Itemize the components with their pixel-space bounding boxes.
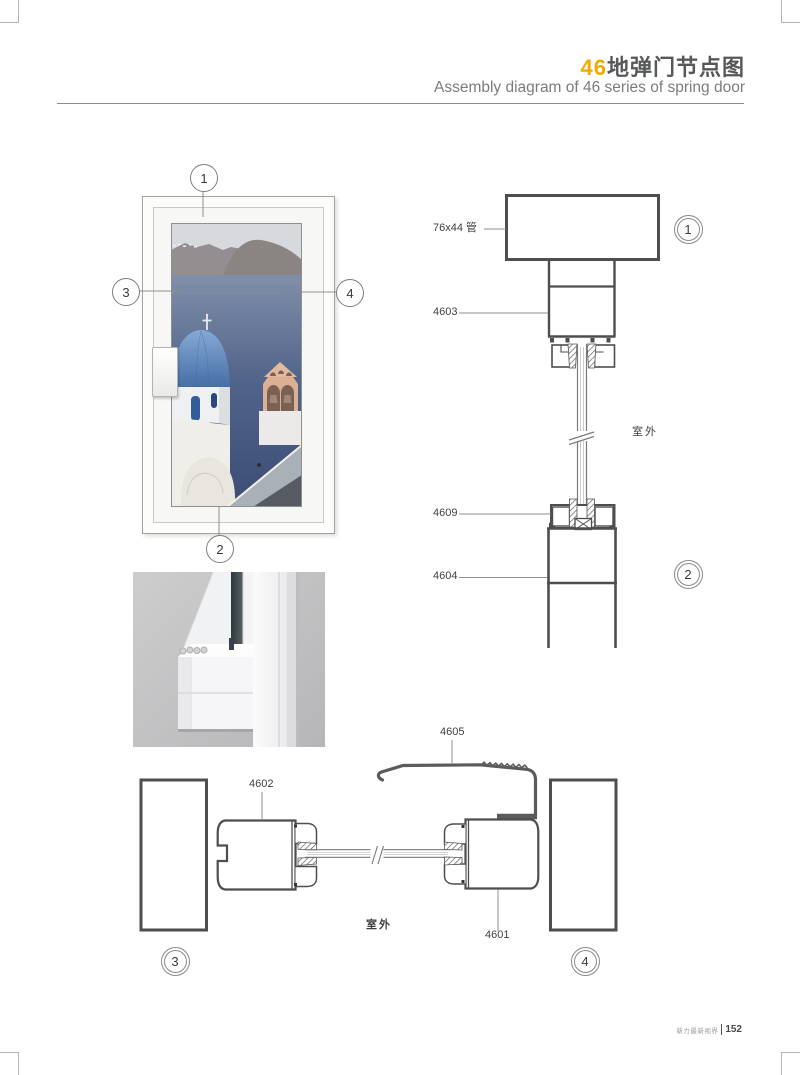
label-4605: 4605 [440, 726, 464, 739]
section-callout-2: 2 [674, 560, 703, 589]
door-callout-2: 2 [206, 535, 234, 563]
section-callout-2-number: 2 [684, 567, 691, 582]
door-callout-1-number: 1 [200, 171, 207, 186]
crop-mark-top-right [781, 0, 800, 23]
section-callout-3-number: 3 [171, 954, 178, 969]
label-4602: 4602 [249, 778, 273, 791]
footer-brand: 新力最新视界 [676, 1025, 718, 1035]
door-handle [152, 347, 178, 397]
profile-corner-render-art [133, 572, 325, 747]
header-rule [57, 103, 744, 104]
footer-divider [721, 1024, 722, 1035]
page-title: 46地弹门节点图 [581, 50, 746, 82]
crop-mark-bottom-left [0, 1052, 19, 1075]
door-glass-photo [171, 223, 302, 507]
footer-page-number: 152 [725, 1024, 742, 1035]
door-callout-3-number: 3 [122, 285, 129, 300]
label-4601: 4601 [485, 929, 509, 942]
label-4609: 4609 [433, 507, 457, 520]
door-callout-4-number: 4 [346, 286, 353, 301]
section-callout-1: 1 [674, 215, 703, 244]
section-callout-1-number: 1 [684, 222, 691, 237]
section-callout-3: 3 [161, 947, 190, 976]
page-footer: 新力最新视界 152 [676, 1024, 742, 1035]
door-callout-1: 1 [190, 164, 218, 192]
door-callout-4: 4 [336, 279, 364, 307]
label-outdoor-top: 室外 [632, 426, 658, 439]
crop-mark-top-left [0, 0, 19, 23]
catalog-page: 46地弹门节点图 Assembly diagram of 46 series o… [0, 0, 800, 1075]
door-elevation-figure [142, 196, 335, 534]
crop-mark-bottom-right [781, 1052, 800, 1075]
section-callout-4: 4 [571, 947, 600, 976]
door-callout-3: 3 [112, 278, 140, 306]
label-4604: 4604 [433, 570, 457, 583]
label-outdoor-bottom: 室外 [366, 919, 392, 932]
label-tube-76x44: 76x44 管 [433, 222, 477, 235]
door-callout-2-number: 2 [216, 542, 223, 557]
section-callout-4-number: 4 [581, 954, 588, 969]
profile-corner-render [133, 572, 325, 747]
page-subtitle: Assembly diagram of 46 series of spring … [434, 79, 745, 97]
section-drawings [0, 0, 800, 1075]
page-title-series-number: 46 [581, 55, 607, 80]
page-title-cn: 地弹门节点图 [607, 55, 745, 80]
label-4603: 4603 [433, 306, 457, 319]
